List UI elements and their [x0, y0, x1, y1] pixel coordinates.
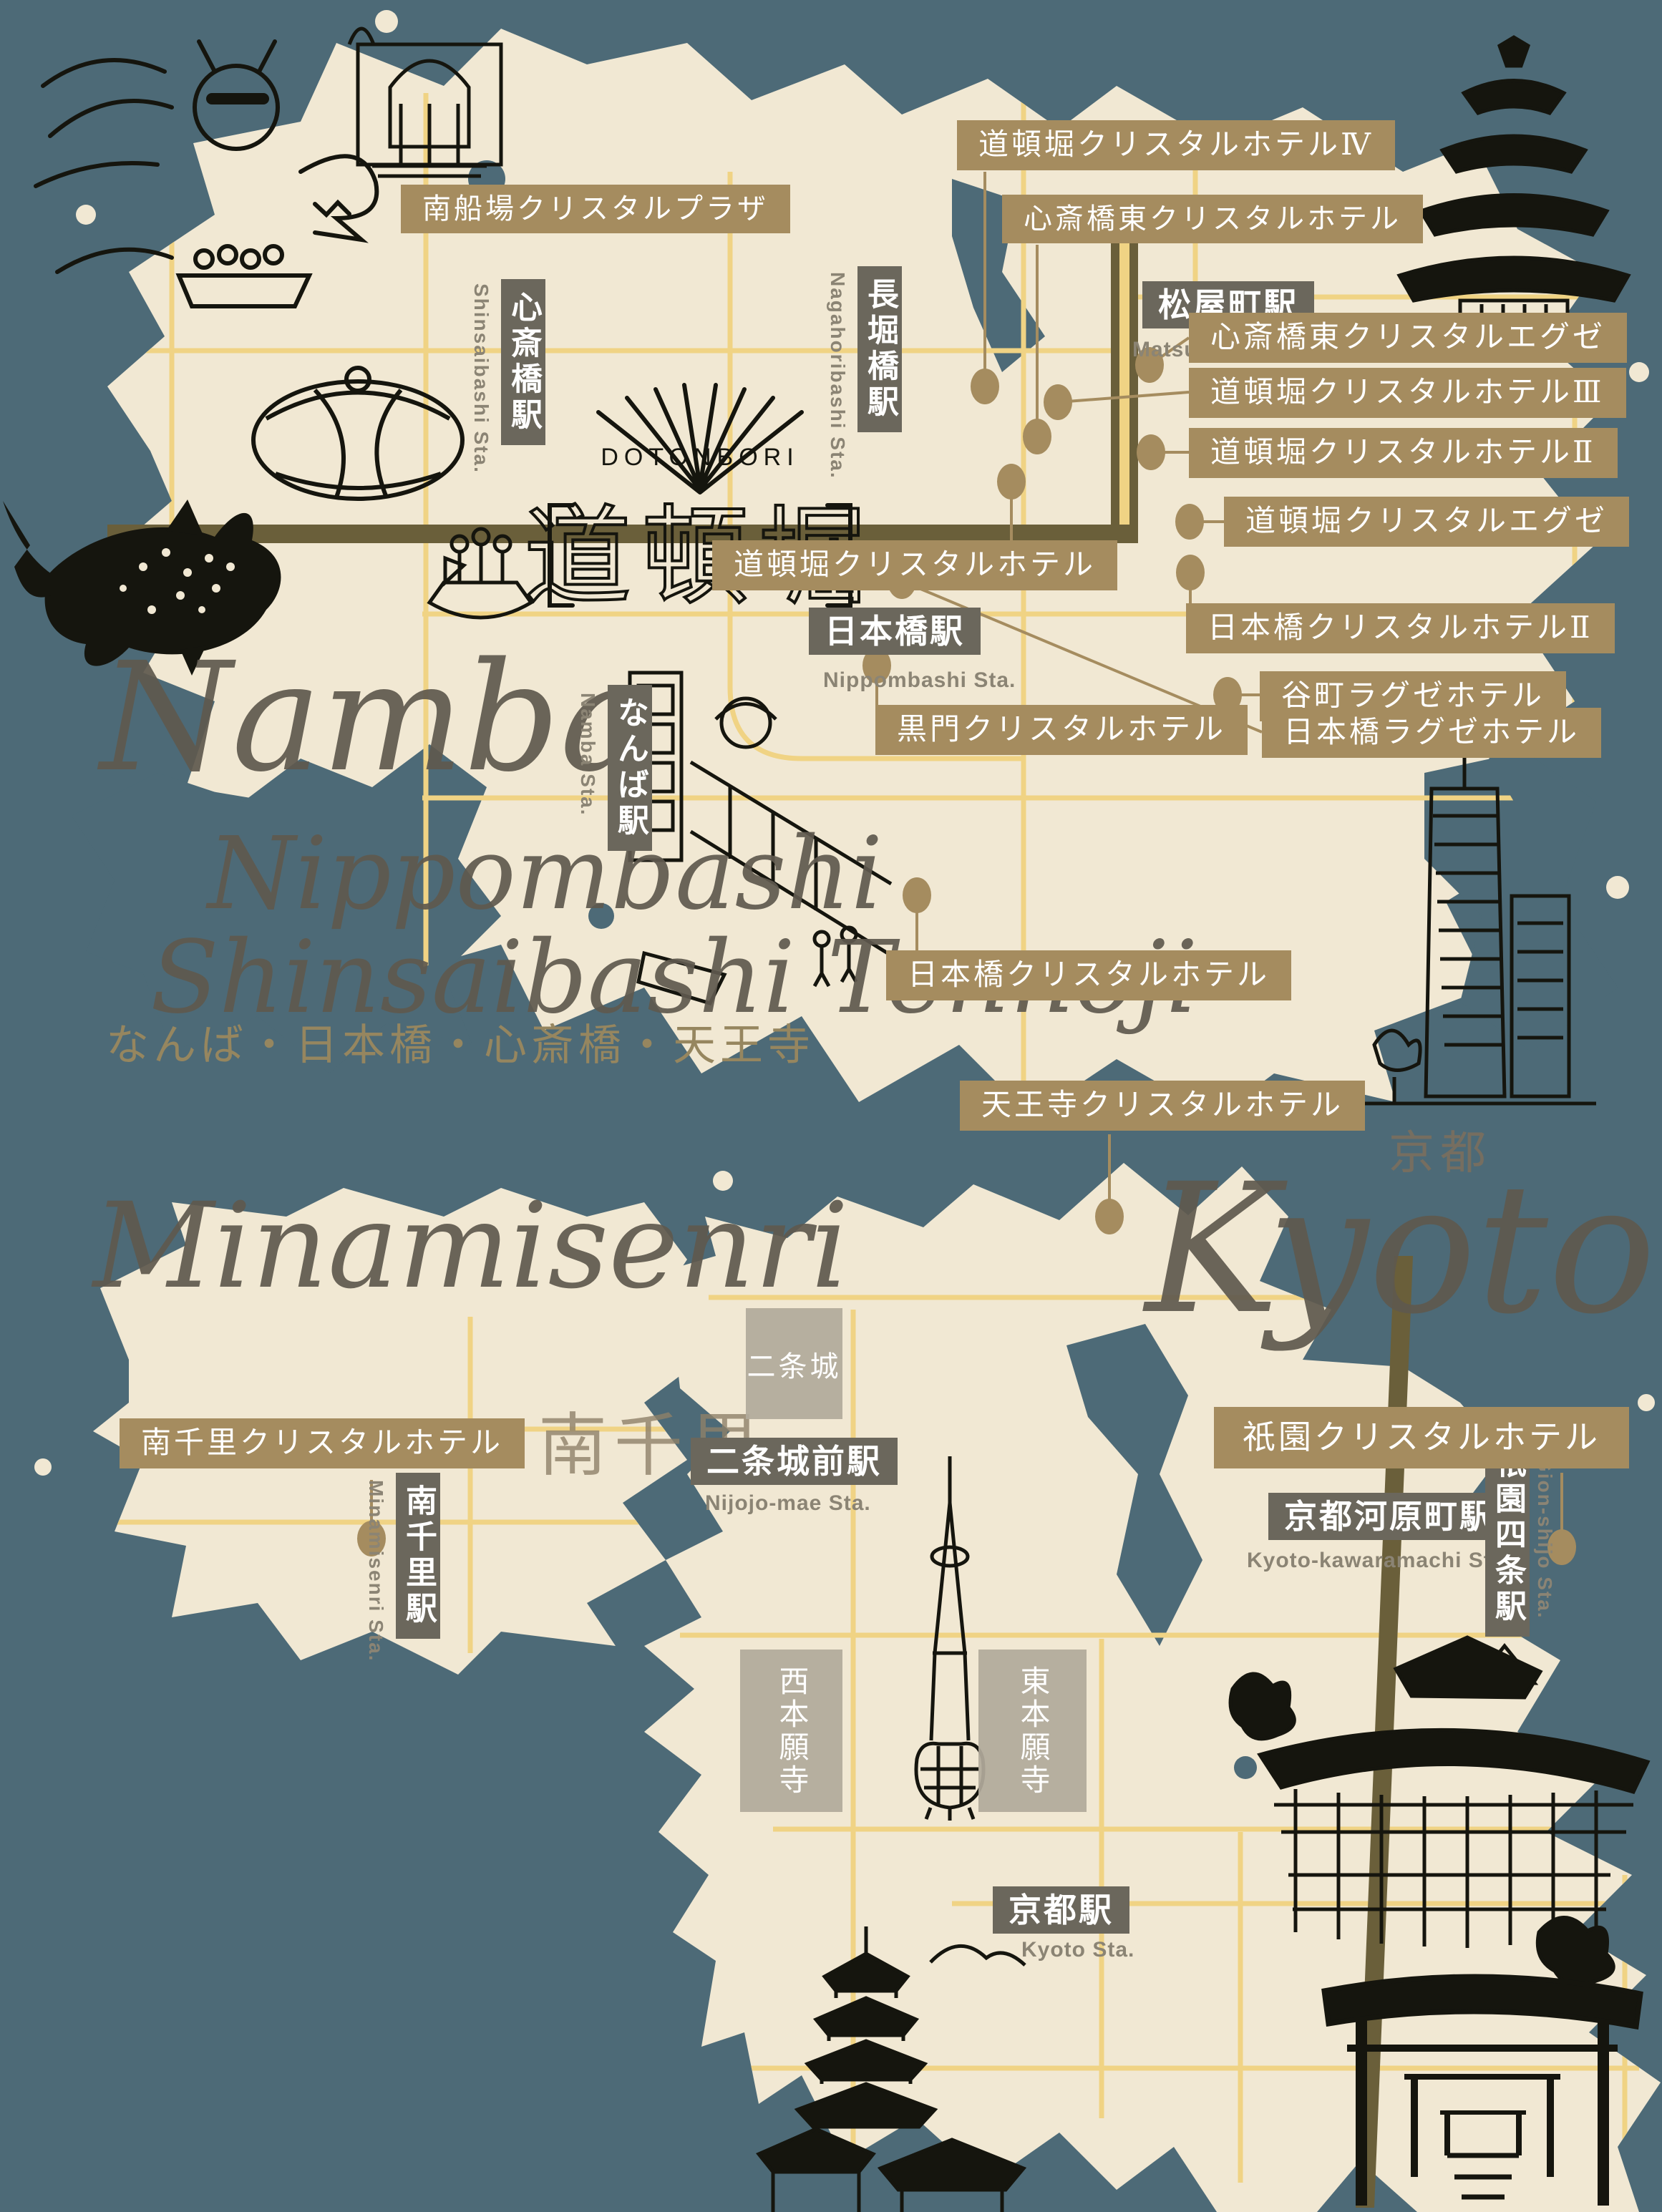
hotel-label-kuromon-crystal-hotel[interactable]: 黒門クリスタルホテル: [875, 705, 1248, 755]
station-romaji: Nijojo-mae Sta.: [705, 1491, 871, 1516]
station-minamisenri: 南千里駅: [396, 1473, 440, 1639]
hotel-marker-dot: [1176, 555, 1205, 590]
hotel-marker-dot: [903, 877, 931, 913]
hotel-label-gion-crystal-hotel[interactable]: 祇園クリスタルホテル: [1214, 1407, 1629, 1468]
hotel-label-shinsaibashi-higashi-crystal-exe[interactable]: 心斎橋東クリスタルエグゼ: [1189, 313, 1627, 363]
station-nijojo-mae: 二条城前駅: [691, 1438, 898, 1485]
landmark-label: 東本願寺: [1011, 1665, 1054, 1797]
hotel-marker-dot: [971, 369, 999, 404]
station-nagahoribashi: 長堀橋駅: [857, 266, 902, 432]
hotel-label-minamisemba-crystal-plaza[interactable]: 南船場クリスタルプラザ: [401, 185, 790, 233]
landmark-nishi-honganji: 西本願寺: [740, 1650, 842, 1812]
hotel-label-nippombashi-luxe-hotel[interactable]: 日本橋ラグゼホテル: [1262, 708, 1601, 758]
station-romaji: Namba Sta.: [576, 693, 599, 817]
landmark-nijo-castle: 二条城: [746, 1308, 842, 1419]
hotel-label-nippombashi-crystal-hotel-2[interactable]: 日本橋クリスタルホテルⅡ: [1186, 603, 1615, 653]
hotel-marker-dot: [1023, 419, 1051, 454]
hotel-label-minamisenri-crystal-hotel[interactable]: 南千里クリスタルホテル: [120, 1418, 525, 1468]
hotel-marker-dot: [997, 464, 1026, 500]
hotel-label-dotonbori-crystal-hotel-2[interactable]: 道頓堀クリスタルホテルⅡ: [1189, 428, 1618, 478]
station-romaji: Nagahoribashi Sta.: [826, 272, 849, 479]
station-kyoto-kawaramachi: 京都河原町駅: [1268, 1493, 1510, 1540]
hotel-label-tennoji-crystal-hotel[interactable]: 天王寺クリスタルホテル: [960, 1081, 1365, 1131]
landmark-higashi-honganji: 東本願寺: [978, 1650, 1087, 1812]
hotel-label-dotonbori-crystal-hotel-3[interactable]: 道頓堀クリスタルホテルⅢ: [1189, 368, 1626, 418]
station-romaji: Kyoto Sta.: [1021, 1938, 1134, 1962]
hotel-marker-dot: [1137, 434, 1165, 470]
hotel-marker-dot: [1175, 504, 1204, 540]
station-namba: なんば駅: [608, 685, 652, 851]
hotel-marker-dot: [1095, 1199, 1124, 1234]
station-romaji: Minamisenri Sta.: [364, 1480, 387, 1662]
hotel-label-dotonbori-crystal-hotel[interactable]: 道頓堀クリスタルホテル: [712, 540, 1117, 590]
station-shinsaibashi: 心斎橋駅: [501, 279, 545, 445]
hotel-map: DOTONBORI 道頓堀 Namba Nippombashi Shinsaib…: [0, 0, 1662, 2212]
hotel-label-dotonbori-crystal-hotel-4[interactable]: 道頓堀クリスタルホテルⅣ: [957, 120, 1395, 170]
hotel-label-nippombashi-crystal-hotel[interactable]: 日本橋クリスタルホテル: [886, 950, 1291, 1000]
station-romaji: Nippombashi Sta.: [823, 668, 1016, 693]
station-nippombashi: 日本橋駅: [809, 608, 981, 655]
hotel-label-dotonbori-crystal-exe[interactable]: 道頓堀クリスタルエグゼ: [1224, 497, 1629, 547]
landmark-label: 西本願寺: [769, 1665, 813, 1797]
hotel-label-shinsaibashi-higashi-crystal-hotel[interactable]: 心斎橋東クリスタルホテル: [1002, 195, 1423, 243]
hotel-marker-dot: [1044, 384, 1072, 420]
station-romaji: Gion-shijo Sta.: [1533, 1456, 1556, 1619]
station-romaji: Kyoto-kawaramachi Sta.: [1247, 1549, 1511, 1573]
station-kyoto: 京都駅: [993, 1886, 1129, 1934]
station-romaji: Shinsaibashi Sta.: [470, 283, 492, 474]
landmark-label: 二条城: [747, 1343, 842, 1385]
